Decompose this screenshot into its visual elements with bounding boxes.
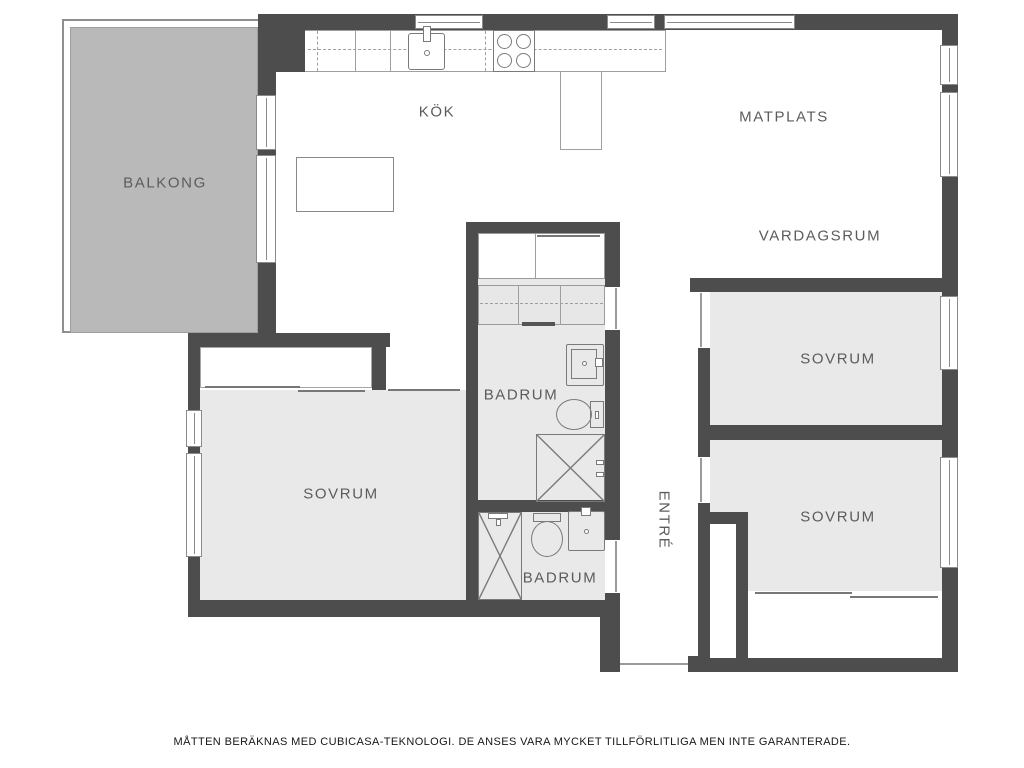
faucet-icon (581, 507, 591, 516)
sliding-door (298, 390, 365, 392)
room-label-balcony: BALKONG (123, 175, 207, 192)
cabinet-dash-line (480, 303, 603, 304)
wall-bathroom-top (466, 222, 620, 233)
wall-entry-closet-right (736, 512, 748, 658)
disclaimer-text: MÅTTEN BERÄKNAS MED CUBICASA-TEKNOLOGI. … (174, 736, 851, 748)
stove-icon (493, 30, 535, 72)
wardrobe-bedroom-bottom-right (748, 600, 942, 658)
burner-icon (516, 34, 531, 49)
sliding-door (537, 235, 600, 237)
balcony-door-window (256, 95, 276, 150)
kitchen-counter-leg (560, 72, 602, 150)
wall-bottom-right (698, 658, 958, 672)
door-leaf (700, 458, 702, 502)
wall-bedroom-bathroom (466, 222, 478, 617)
sliding-door (850, 596, 938, 598)
wardrobe-hall-closet (478, 233, 605, 279)
burner-icon (497, 34, 512, 49)
counter-dash-divider (485, 31, 486, 71)
faucet-icon (423, 26, 431, 42)
bathroom-sink-icon (568, 511, 605, 551)
kitchen-island (296, 157, 394, 212)
window (186, 453, 202, 557)
wall-balcony-bottom (188, 333, 390, 347)
sliding-door (205, 386, 300, 388)
door-leaf (700, 293, 702, 347)
window (186, 410, 202, 447)
room-label-dining: MATPLATS (739, 109, 829, 126)
room-label-kitchen: KÖK (419, 104, 455, 121)
flush-button (595, 411, 599, 419)
shower-valve-icon (596, 460, 604, 465)
entrance-threshold (620, 663, 688, 665)
door-leaf (615, 541, 617, 592)
floor-plan: BALKONG KÖK MATPLATS VARDAGSRUM SOVRUM S… (0, 0, 1024, 768)
balcony-door-window (256, 155, 276, 263)
door-opening-bathroom-main (605, 287, 620, 330)
window (664, 15, 795, 29)
drain-dot (584, 529, 589, 534)
door-leaf (615, 288, 617, 329)
drain-dot (582, 361, 587, 366)
burner-icon (497, 53, 512, 68)
sliding-door (755, 592, 852, 594)
wall-bedroom2-left-upper (698, 437, 710, 457)
wall-bottom-left (188, 600, 620, 617)
window (607, 15, 655, 29)
room-label-living-room: VARDAGSRUM (759, 228, 881, 245)
wall-bedroom-divider (698, 425, 958, 440)
cabinet-row (478, 285, 605, 325)
kitchen-counter (276, 30, 666, 72)
wall-bedroom1-left (698, 348, 710, 425)
counter-dash-divider (317, 31, 318, 71)
cabinet-divider (560, 285, 561, 325)
wardrobe-bedroom-left (200, 347, 372, 388)
shower-icon (536, 434, 605, 502)
room-label-bedroom-bottom-right: SOVRUM (800, 509, 875, 526)
burner-icon (516, 53, 531, 68)
room-label-bathroom-second: BADRUM (523, 570, 598, 587)
wall-corridor-right-lower (698, 503, 710, 672)
room-label-bedroom-top-right: SOVRUM (800, 351, 875, 368)
window (940, 296, 958, 370)
soap-holder (595, 358, 603, 367)
sliding-door (522, 322, 555, 326)
wall-bedroom1-top (690, 278, 958, 292)
wall-closet-pillar (372, 333, 386, 390)
room-label-bedroom-left: SOVRUM (303, 486, 378, 503)
bathroom-sink-icon (566, 344, 604, 386)
toilet-icon (556, 399, 592, 430)
window (940, 457, 958, 568)
window (940, 45, 958, 85)
wall-kitchen-corner (276, 30, 305, 72)
toilet-icon (531, 521, 563, 557)
window (940, 92, 958, 177)
room-label-bathroom-main: BADRUM (484, 387, 559, 404)
toilet-tank (590, 401, 604, 428)
counter-divider (390, 31, 391, 71)
closet-divider (535, 233, 536, 279)
shower-faucet-icon (496, 519, 501, 526)
counter-divider (355, 31, 356, 71)
cabinet-divider (518, 285, 519, 325)
entry-closet (710, 524, 736, 658)
door-opening-bathroom-second (605, 540, 620, 593)
shower-valve-icon (596, 472, 604, 477)
drain-dot (424, 50, 430, 56)
room-label-entry: ENTRÉ (656, 491, 673, 550)
door-threshold (388, 389, 460, 391)
